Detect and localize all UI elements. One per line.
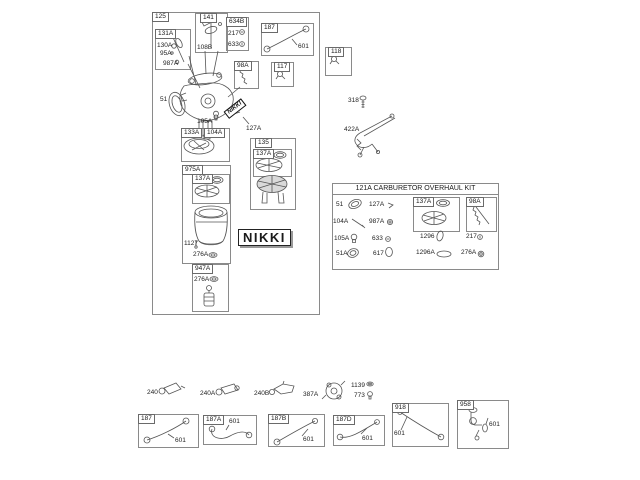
lever-240-drawing	[159, 383, 185, 394]
hose-601-187D: 601	[362, 435, 373, 443]
hose-601-187A: 601	[229, 418, 240, 426]
part-callout-240: 240	[147, 389, 158, 397]
kit-callout-987A: 987A	[369, 218, 384, 226]
kit-tag-137A: 137A	[413, 197, 434, 207]
group-tag-137A-in-135: 137A	[253, 149, 274, 159]
washer-1139-drawing	[367, 382, 373, 386]
hose-601-187: 601	[175, 437, 186, 445]
part-callout-240A: 240A	[200, 390, 215, 398]
hose-601-187B: 601	[303, 436, 314, 444]
kit-box-98A: 98A	[466, 197, 497, 232]
part-callout-633: 633	[228, 41, 239, 49]
group-tag-634B: 634B	[226, 17, 247, 27]
group-box-133A: 133A 104A	[181, 128, 230, 162]
part-callout-130A: 130A	[157, 42, 172, 50]
bulb-773-drawing	[368, 392, 373, 399]
part-callout-108B: 108B	[197, 44, 212, 52]
group-box-187-top: 187	[261, 23, 314, 56]
part-callout-217: 217	[228, 30, 239, 38]
group-tag-137A-in-975A: 137A	[192, 174, 213, 184]
kit-callout-217: 217	[466, 233, 477, 241]
kit-callout-51: 51	[336, 201, 343, 209]
hose-601-958: 601	[489, 421, 500, 429]
kit-callout-105A: 105A	[334, 235, 349, 243]
kit-box-137A: 137A	[413, 197, 460, 232]
group-box-137A-in-135: 137A	[253, 149, 292, 177]
hose-box-958: 958	[457, 400, 509, 449]
group-box-137A-in-975A: 137A	[192, 174, 230, 204]
part-callout-95A: 95A	[160, 50, 172, 58]
part-callout-51: 51	[160, 96, 167, 104]
bracket-387A-drawing	[322, 381, 345, 399]
group-tag-141: 141	[200, 13, 217, 23]
kit-callout-104A: 104A	[333, 218, 348, 226]
diagram-line-art	[0, 0, 640, 480]
kit-callout-617: 617	[373, 250, 384, 258]
linkage-422A-drawing	[355, 114, 395, 157]
part-callout-387A: 387A	[303, 391, 318, 399]
kit-callout-276A: 276A	[461, 249, 476, 257]
hose-tag-187A: 187A	[203, 415, 224, 425]
part-callout-240B: 240B	[254, 390, 269, 398]
group-tag-133A: 133A	[181, 128, 202, 138]
hose-601-918: 601	[394, 430, 405, 438]
group-tag-117: 117	[274, 62, 290, 72]
group-tag-187-top: 187	[261, 23, 278, 33]
lever-240B-drawing	[269, 381, 294, 395]
group-tag-118: 118	[328, 47, 344, 57]
group-tag-131A: 131A	[155, 29, 176, 39]
part-callout-276A-947A: 276A	[194, 276, 209, 284]
screw-318-drawing	[360, 96, 366, 108]
hose-tag-187D: 187D	[333, 415, 355, 425]
part-callout-276A: 276A	[193, 251, 208, 259]
hose-tag-187B: 187B	[268, 414, 289, 424]
kit-callout-127A: 127A	[369, 201, 384, 209]
kit-callout-1296A: 1296A	[416, 249, 435, 257]
kit-callout-51A: 51A	[336, 250, 348, 258]
group-box-98A: 98A	[234, 61, 259, 89]
group-tag-135: 135	[255, 138, 272, 148]
hose-box-918: 918	[392, 403, 449, 447]
lever-240A-drawing	[216, 384, 239, 395]
part-callout-987A: 987A	[163, 60, 178, 68]
hose-tag-187: 187	[138, 414, 155, 424]
part-callout-422A: 422A	[344, 126, 359, 134]
hose-tag-958: 958	[457, 400, 474, 410]
hose-box-187B: 187B	[268, 414, 325, 447]
hose-box-187D: 187D	[333, 415, 385, 446]
part-callout-601: 601	[298, 43, 309, 51]
part-callout-1139: 1139	[351, 382, 365, 390]
kit-callout-1296: 1296	[420, 233, 434, 241]
group-box-947A: 947A	[192, 264, 229, 312]
group-box-117: 117	[271, 62, 294, 87]
overhaul-kit-title: 121A CARBURETOR OVERHAUL KIT	[333, 184, 498, 195]
part-callout-105A: 105A	[197, 118, 212, 126]
group-tag-125: 125	[152, 12, 169, 22]
part-callout-318: 318	[348, 97, 359, 105]
part-callout-127A: 127A	[246, 125, 261, 133]
hose-tag-918: 918	[392, 403, 409, 413]
group-tag-947A: 947A	[192, 264, 213, 274]
part-callout-1127: 1127	[184, 240, 198, 248]
group-tag-98A: 98A	[234, 61, 252, 71]
group-box-118: 118	[325, 47, 352, 76]
kit-tag-98A: 98A	[466, 197, 484, 207]
group-tag-104A: 104A	[204, 128, 225, 138]
kit-callout-633: 633	[372, 235, 383, 243]
parts-diagram-page: 125 131A 130A 95A 987A 141 108B 634B 217…	[0, 0, 640, 480]
nikki-logo: NIKKI	[238, 229, 291, 246]
hose-box-187: 187	[138, 414, 199, 448]
part-callout-773: 773	[354, 392, 365, 400]
